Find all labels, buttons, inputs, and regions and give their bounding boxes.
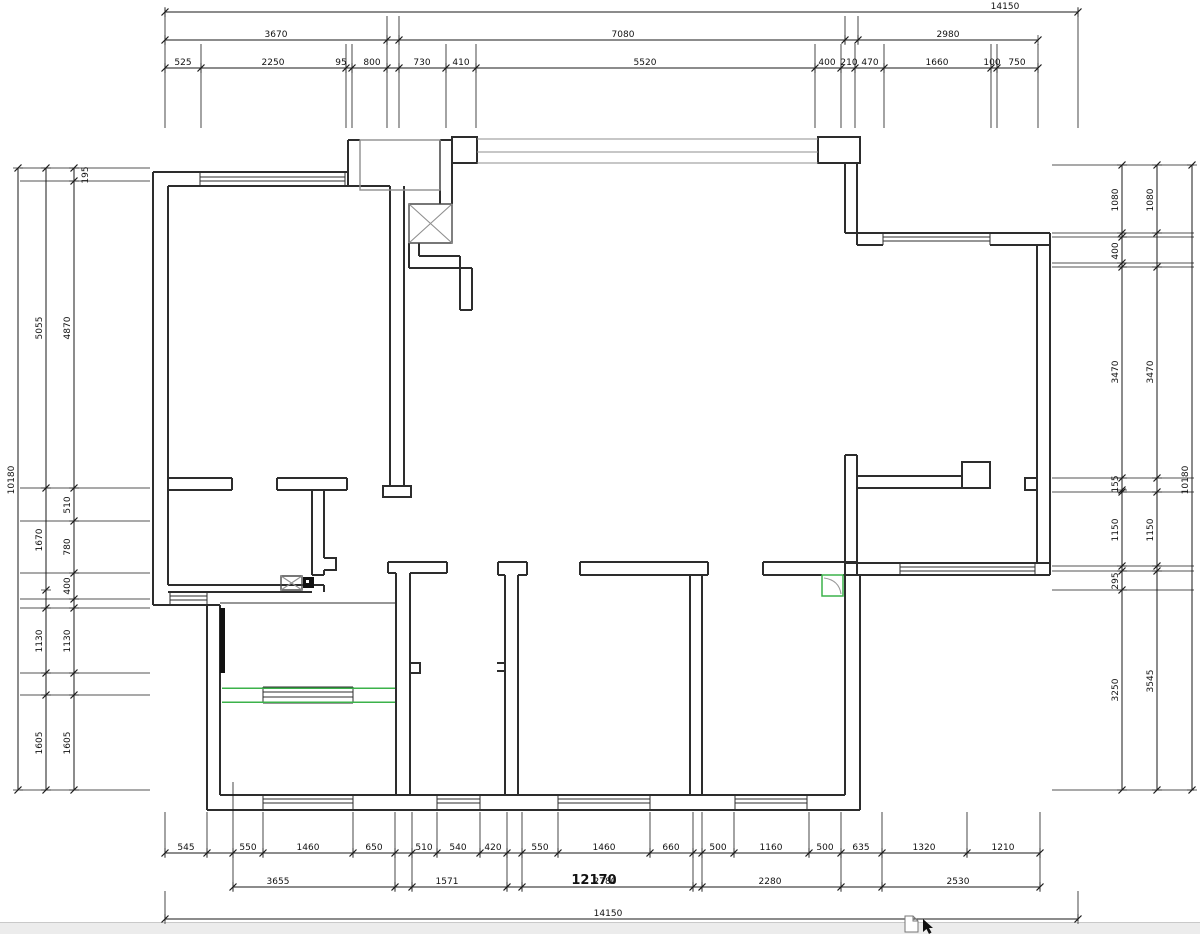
dim-row-top-groups: 367070802980 <box>162 30 1042 45</box>
dim-label: 1210 <box>992 843 1015 853</box>
dim-label: 545 <box>177 843 194 853</box>
right-mid-wall <box>845 563 1050 575</box>
shaft-box-borders <box>281 204 452 590</box>
dim-label: 400 <box>63 577 73 594</box>
dim-row-bottom-detail: 5455501460650510540420550146066050011605… <box>162 843 1044 858</box>
dim-row-top-detail: 5252250958007304105520400210470166010075… <box>162 58 1042 73</box>
door-swing-arc <box>824 578 841 594</box>
dim-label: 510 <box>415 843 432 853</box>
dim-label: 470 <box>861 58 878 68</box>
dim-col-right-mid: 1080347011503545 <box>1146 162 1162 794</box>
bottom-window-2 <box>437 795 480 810</box>
extension-lines-h <box>20 168 150 790</box>
living-right-wall <box>383 186 411 497</box>
right-mid-window <box>900 563 1035 575</box>
dim-label: 1460 <box>593 843 616 853</box>
dim-label: 1605 <box>63 732 73 755</box>
dim-label: 650 <box>365 843 382 853</box>
dim-col-right-outer: 10180 <box>1181 162 1197 794</box>
dim-label: 420 <box>484 843 501 853</box>
dim-label: 3250 <box>1111 678 1121 701</box>
dim-label: 400 <box>818 58 835 68</box>
dim-label: 1660 <box>926 58 949 68</box>
dim-row-bottom-overall: 14150 <box>162 909 1082 924</box>
dim-row-top-overall: 14150 <box>162 2 1082 17</box>
dim-label: 5520 <box>634 58 657 68</box>
green-highlights <box>222 575 843 702</box>
extension-lines-v <box>233 857 1040 891</box>
dim-label: 14150 <box>594 909 623 919</box>
dim-label: 1670 <box>35 528 45 551</box>
dim-label: 1150 <box>1146 518 1156 541</box>
dim-label: 100 <box>983 58 1000 68</box>
dim-label: 2530 <box>947 877 970 887</box>
bathroom-walls <box>168 478 347 592</box>
dimension-layer: 1415036707080298052522509580073041055204… <box>7 2 1197 924</box>
dim-label: 550 <box>531 843 548 853</box>
dim-label: 525 <box>174 58 191 68</box>
dim-label: 7080 <box>612 30 635 40</box>
cursor-icon <box>923 919 933 934</box>
dim-label: 400 <box>1111 242 1121 259</box>
dim-label: 2280 <box>759 877 782 887</box>
dim-label: 5055 <box>35 317 45 340</box>
dim-label: 1320 <box>913 843 936 853</box>
bottom-window-1 <box>263 795 353 810</box>
dim-label: 295 <box>1111 572 1121 589</box>
bay-window-green-lines <box>222 688 395 702</box>
dim-row-bottom-groups: 36551571278022802530 <box>230 877 1044 892</box>
dim-label: 95 <box>335 58 346 68</box>
dim-label: 1460 <box>297 843 320 853</box>
elevator-lobby-box <box>360 140 440 190</box>
bay-window <box>263 687 353 703</box>
balcony-railing-lines <box>477 139 818 163</box>
dim-col-left-outer: 10180 <box>7 165 23 794</box>
living-room-walls <box>153 140 390 605</box>
dim-label: 4870 <box>63 316 73 339</box>
floor-plan-canvas[interactable]: 1415036707080298052522509580073041055204… <box>0 0 1200 934</box>
dim-label: 550 <box>239 843 256 853</box>
dim-label: 1150 <box>1111 518 1121 541</box>
dim-label: 1130 <box>35 629 45 652</box>
dim-label: 500 <box>816 843 833 853</box>
dim-label: 10180 <box>1181 465 1191 494</box>
dim-label: 14150 <box>991 2 1020 12</box>
dim-label: 750 <box>1008 58 1025 68</box>
dim-label: 1080 <box>1146 188 1156 211</box>
dim-label: 510 <box>63 496 73 513</box>
page-icon <box>905 916 918 932</box>
dim-label: 540 <box>449 843 466 853</box>
bedroom-top-window <box>883 233 990 245</box>
dim-label: 3470 <box>1111 360 1121 383</box>
exterior-walls <box>153 137 1050 810</box>
bottom-window-4 <box>735 795 807 810</box>
shaft-x-icon <box>281 204 452 590</box>
dim-label: 635 <box>852 843 869 853</box>
dim-label: 500 <box>709 843 726 853</box>
dim-label: 800 <box>363 58 380 68</box>
dim-label: 730 <box>413 58 430 68</box>
living-top-window <box>200 172 345 186</box>
lower-exterior-walls <box>153 575 860 810</box>
dim-label: 1571 <box>436 877 459 887</box>
dim-label: 1160 <box>760 843 783 853</box>
dim-label: 1080 <box>1111 188 1121 211</box>
dim-label: 3545 <box>1146 670 1156 693</box>
bottom-window-3 <box>558 795 650 810</box>
dim-label: 3470 <box>1146 360 1156 383</box>
dim-label: 780 <box>63 538 73 555</box>
gray-fixtures <box>281 139 841 594</box>
balcony-end-blocks <box>452 137 860 163</box>
interior-partition-walls <box>388 562 857 795</box>
dim-label: 3670 <box>265 30 288 40</box>
dim-label: 1130 <box>63 629 73 652</box>
dim-label: 1605 <box>35 732 45 755</box>
dim-col-left-inner: 195487051078040011301605 <box>63 165 91 794</box>
bathroom-small-window <box>170 592 207 605</box>
door-leaf <box>220 608 225 673</box>
dim-col-right-inner: 1080400347015511502953250 <box>1111 162 1127 794</box>
drawing-area[interactable]: 1415036707080298052522509580073041055204… <box>0 0 1200 934</box>
bedroom-walls <box>845 233 1050 575</box>
dim-label: 2250 <box>262 58 285 68</box>
dim-label: 660 <box>662 843 679 853</box>
dim-label: 3655 <box>267 877 290 887</box>
dim-label: 410 <box>452 58 469 68</box>
annotation-label: 12170 <box>571 873 616 888</box>
dim-label: 10180 <box>7 465 17 494</box>
extension-lines-v <box>201 44 1038 128</box>
dim-col-left-mid: 5055167011301605 <box>35 165 51 794</box>
dim-label: 2980 <box>937 30 960 40</box>
